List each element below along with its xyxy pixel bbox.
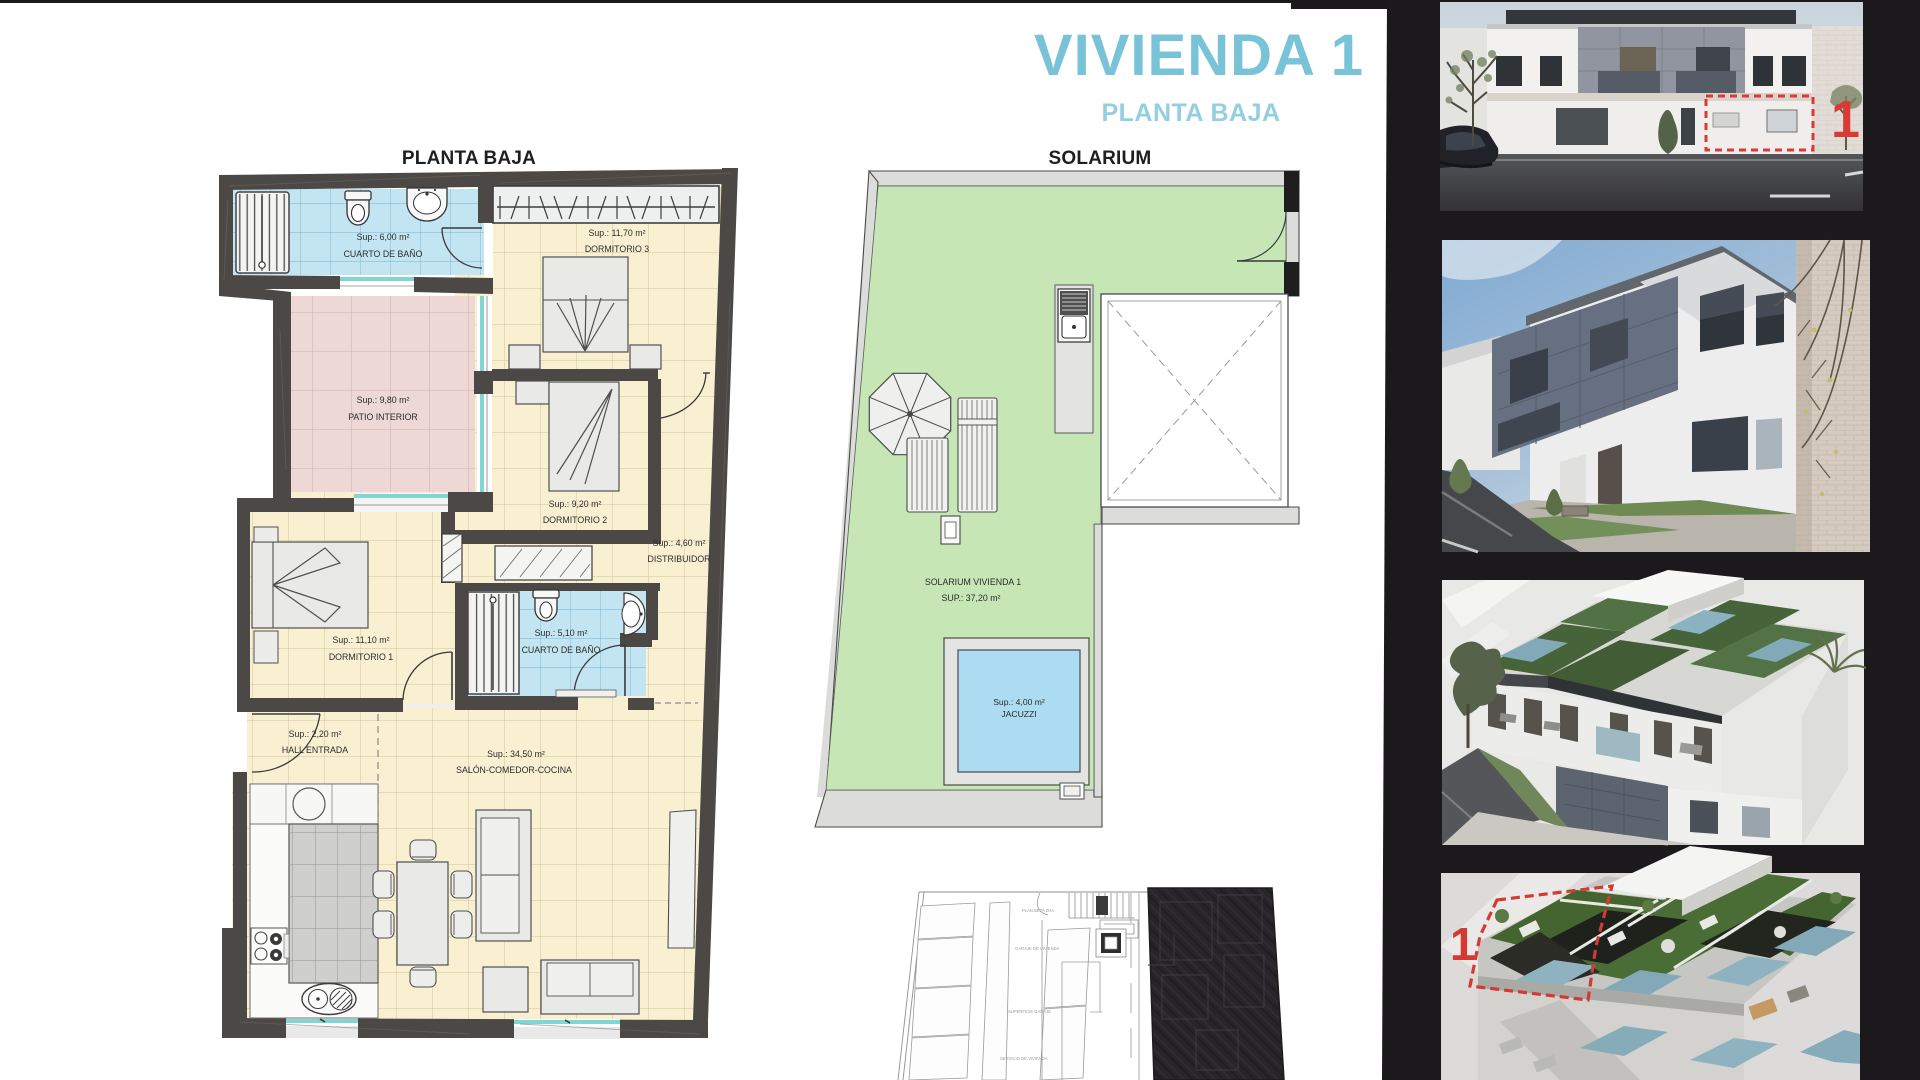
svg-text:Sup.: 2,20 m²: Sup.: 2,20 m² <box>289 729 342 739</box>
svg-text:SUP.: 37,20 m²: SUP.: 37,20 m² <box>941 593 1000 603</box>
svg-text:1: 1 <box>1831 91 1860 149</box>
svg-text:CUARTO DE BAÑO: CUARTO DE BAÑO <box>522 645 601 655</box>
svg-text:Sup.: 6,00 m²: Sup.: 6,00 m² <box>357 232 410 242</box>
svg-text:Sup.: 9,80 m²: Sup.: 9,80 m² <box>357 395 410 405</box>
svg-text:SALÓN-COMEDOR-COCINA: SALÓN-COMEDOR-COCINA <box>456 765 572 775</box>
svg-text:SOLARIUM VIVIENDA 1: SOLARIUM VIVIENDA 1 <box>925 577 1021 587</box>
svg-text:PATIO INTERIOR: PATIO INTERIOR <box>348 412 418 422</box>
svg-text:DORMITORIO 1: DORMITORIO 1 <box>329 652 393 662</box>
svg-text:DORMITORIO 3: DORMITORIO 3 <box>585 244 649 254</box>
svg-text:CUARTO DE BAÑO: CUARTO DE BAÑO <box>344 249 423 259</box>
svg-text:JACUZZI: JACUZZI <box>1001 709 1036 719</box>
svg-text:Sup.: 11,70 m²: Sup.: 11,70 m² <box>588 228 645 238</box>
svg-text:Sup.: 4,00 m²: Sup.: 4,00 m² <box>993 697 1045 707</box>
svg-text:DORMITORIO 2: DORMITORIO 2 <box>543 515 607 525</box>
svg-text:SOLARIUM: SOLARIUM <box>1049 148 1152 169</box>
svg-text:Sup.: 11,10 m²: Sup.: 11,10 m² <box>332 635 389 645</box>
svg-text:Sup.: 4,60 m²: Sup.: 4,60 m² <box>653 538 706 548</box>
svg-text:Sup.: 34,50 m²: Sup.: 34,50 m² <box>487 749 545 759</box>
svg-text:GARAJE DE VIVIENDA: GARAJE DE VIVIENDA <box>1015 946 1060 951</box>
svg-text:VIVIENDA 1: VIVIENDA 1 <box>1034 23 1364 88</box>
svg-text:DISTRIBUIDOR: DISTRIBUIDOR <box>647 554 710 564</box>
svg-text:HALL ENTRADA: HALL ENTRADA <box>282 745 348 755</box>
svg-text:PLANTA BAJA: PLANTA BAJA <box>1101 99 1280 127</box>
svg-text:Sup.: 5,10 m²: Sup.: 5,10 m² <box>535 628 588 638</box>
svg-text:Sup.: 9,20 m²: Sup.: 9,20 m² <box>549 499 602 509</box>
svg-text:PLANTA BAJA: PLANTA BAJA <box>402 148 536 169</box>
svg-text:SUPERFICIE GARAJE: SUPERFICIE GARAJE <box>1008 1009 1051 1014</box>
svg-text:SERVICIO DE VIVIENDA: SERVICIO DE VIVIENDA <box>1000 1056 1048 1061</box>
svg-text:1: 1 <box>1450 918 1476 970</box>
